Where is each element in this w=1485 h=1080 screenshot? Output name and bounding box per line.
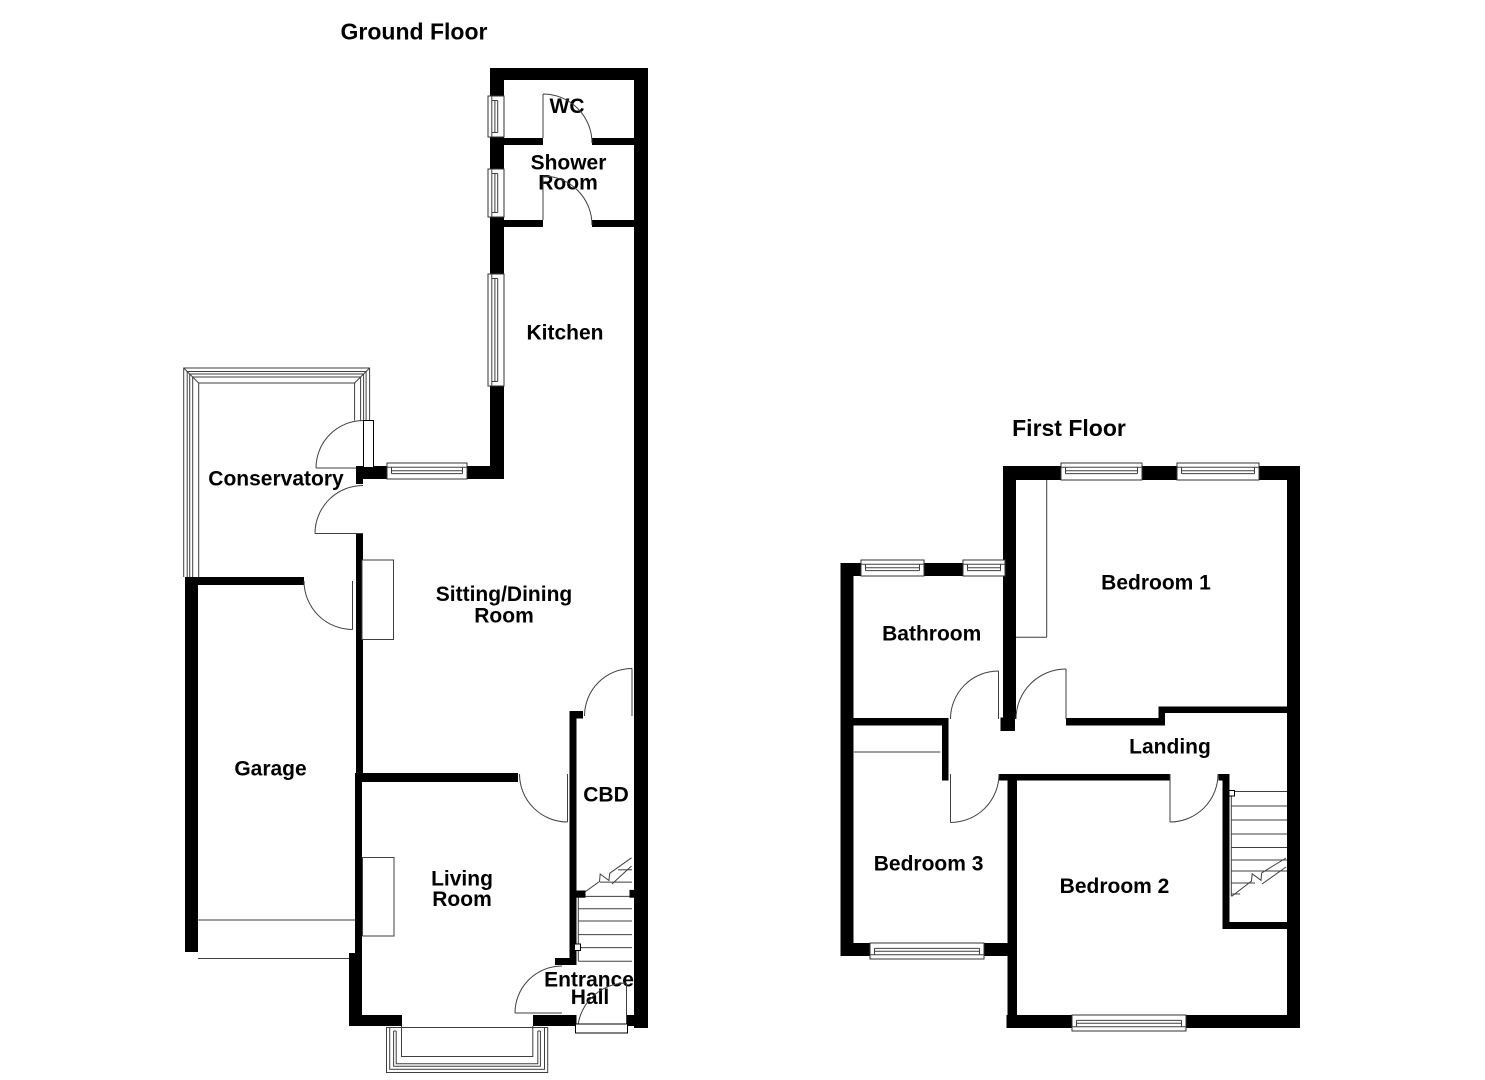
svg-text:CBD: CBD xyxy=(583,784,629,807)
svg-text:Ground Floor: Ground Floor xyxy=(341,19,488,45)
svg-text:Landing: Landing xyxy=(1129,736,1211,759)
svg-text:Room: Room xyxy=(474,605,534,628)
svg-text:Garage: Garage xyxy=(234,757,306,780)
svg-text:Sitting/Dining: Sitting/Dining xyxy=(436,583,572,606)
svg-text:Room: Room xyxy=(432,888,492,911)
svg-text:Bedroom 2: Bedroom 2 xyxy=(1060,875,1170,898)
svg-text:WC: WC xyxy=(550,95,585,118)
svg-text:Kitchen: Kitchen xyxy=(526,321,603,344)
svg-text:Bathroom: Bathroom xyxy=(882,623,981,646)
svg-text:Hall: Hall xyxy=(571,986,610,1009)
svg-text:Living: Living xyxy=(431,868,493,891)
svg-text:Bedroom 1: Bedroom 1 xyxy=(1101,572,1211,595)
svg-text:First Floor: First Floor xyxy=(1012,415,1126,441)
svg-text:Conservatory: Conservatory xyxy=(208,468,344,491)
svg-text:Bedroom 3: Bedroom 3 xyxy=(874,853,984,876)
